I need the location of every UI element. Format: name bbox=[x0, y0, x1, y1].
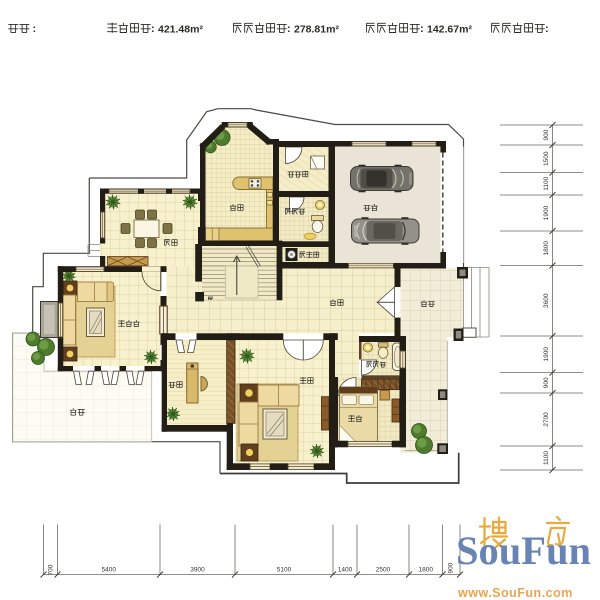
svg-text:142.67m²: 142.67m² bbox=[427, 24, 472, 36]
svg-text::: : bbox=[545, 23, 549, 35]
svg-text:1100: 1100 bbox=[543, 451, 550, 465]
svg-text::: : bbox=[287, 23, 291, 35]
svg-text:700: 700 bbox=[48, 564, 55, 575]
svg-text::: : bbox=[151, 23, 155, 35]
svg-text:421.48m²: 421.48m² bbox=[158, 24, 203, 36]
svg-text:2700: 2700 bbox=[543, 412, 550, 427]
svg-text:1800: 1800 bbox=[543, 241, 550, 256]
svg-text:278.81m²: 278.81m² bbox=[294, 24, 339, 36]
svg-text:1900: 1900 bbox=[543, 205, 550, 220]
svg-text::: : bbox=[420, 23, 424, 35]
svg-text:www.SouFun.com: www.SouFun.com bbox=[457, 586, 573, 600]
svg-text:1100: 1100 bbox=[543, 176, 550, 190]
svg-text:2500: 2500 bbox=[376, 567, 391, 574]
svg-text:3900: 3900 bbox=[190, 567, 205, 574]
svg-text:1400: 1400 bbox=[338, 567, 353, 574]
svg-text:SouFun: SouFun bbox=[456, 528, 591, 573]
svg-text:900: 900 bbox=[543, 377, 550, 388]
svg-text:1800: 1800 bbox=[419, 567, 434, 574]
svg-text:5100: 5100 bbox=[277, 567, 292, 574]
svg-text:5400: 5400 bbox=[102, 567, 117, 574]
svg-text::: : bbox=[33, 23, 37, 35]
svg-text:1500: 1500 bbox=[543, 151, 550, 166]
svg-text:3600: 3600 bbox=[543, 293, 550, 308]
svg-text:1900: 1900 bbox=[543, 347, 550, 362]
svg-text:900: 900 bbox=[543, 129, 550, 140]
svg-text:900: 900 bbox=[447, 562, 454, 573]
